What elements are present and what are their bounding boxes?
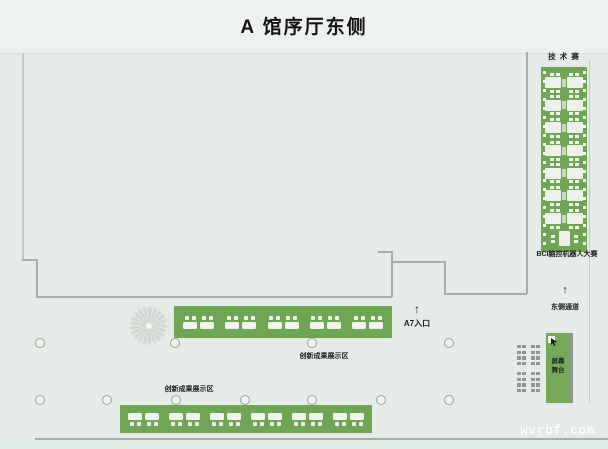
east-passage-arrow-icon: ↑: [556, 284, 574, 296]
wall-bottom: [35, 438, 608, 440]
upper-display-strip: [174, 306, 392, 338]
wall-top: [0, 53, 608, 54]
wall-alcove-right-v: [444, 261, 446, 295]
stage-cursor-icon: [548, 336, 558, 346]
tech-booth-unit: [546, 73, 582, 93]
pillar: [35, 395, 45, 405]
lower-display-label: 创新成果展示区: [153, 384, 225, 394]
display-table: [128, 413, 142, 426]
display-table: [227, 413, 241, 426]
display-table: [350, 413, 364, 426]
tech-booth-unit: [546, 141, 582, 161]
display-table: [210, 413, 224, 426]
table-pair: [352, 316, 383, 329]
pillar: [171, 395, 181, 405]
display-table: [333, 413, 347, 426]
pillar: [444, 338, 454, 348]
pillar: [102, 395, 112, 405]
display-table: [327, 316, 341, 329]
screen-stage: 屏幕 舞台: [546, 333, 573, 403]
wall-step-left-h: [22, 259, 37, 261]
pillar: [35, 338, 45, 348]
display-table: [242, 316, 256, 329]
tech-booth-unit: [546, 95, 582, 115]
pillar: [307, 338, 317, 348]
east-passage-label: 东侧通道: [544, 302, 586, 312]
pillar: [240, 395, 250, 405]
tech-booth-unit: [546, 163, 582, 183]
display-table: [292, 413, 306, 426]
wall-right-outer: [589, 60, 590, 402]
wall-notch-h: [378, 251, 392, 253]
tech-zone-booth-strip: [541, 67, 587, 252]
display-table: [369, 316, 383, 329]
floor-plan: A 馆序厅东侧 技 术 赛 BCI脑控机器人大赛 ↑ 东侧通道 ↑ A7入口 创…: [0, 0, 608, 449]
tech-booth-end-unit: [546, 231, 582, 246]
display-table: [352, 316, 366, 329]
wall-step-left-v: [36, 259, 38, 297]
display-table: [310, 316, 324, 329]
display-table: [169, 413, 183, 426]
audience-seats-lower: [517, 372, 540, 392]
plan-bottom-band: [0, 439, 608, 449]
tech-booth-unit: [546, 118, 582, 138]
table-pair: [268, 316, 299, 329]
bci-competition-label: BCI脑控机器人大赛: [524, 249, 608, 259]
display-table: [200, 316, 214, 329]
pillar: [170, 338, 180, 348]
stage-label: 屏幕 舞台: [546, 357, 570, 375]
display-table: [309, 413, 323, 426]
table-pair: [183, 316, 214, 329]
round-fan-feature: [129, 306, 168, 345]
tech-zone-label: 技 术 赛: [531, 51, 597, 62]
display-table: [268, 413, 282, 426]
display-table: [145, 413, 159, 426]
watermark: wvrbf.com: [520, 423, 608, 438]
pillar: [307, 395, 317, 405]
pillar: [444, 395, 454, 405]
tech-booth-unit: [546, 186, 582, 206]
wall-alcove-bottom: [444, 293, 527, 295]
table-pair: [251, 413, 282, 426]
display-table: [268, 316, 282, 329]
display-table: [285, 316, 299, 329]
wall-alcove-top: [391, 261, 445, 263]
display-table: [186, 413, 200, 426]
wall-left: [22, 53, 24, 259]
table-pair: [225, 316, 256, 329]
display-table: [251, 413, 265, 426]
tech-booth-unit: [546, 209, 582, 229]
table-pair: [210, 413, 241, 426]
page-title: A 馆序厅东侧: [0, 12, 608, 39]
lower-display-strip: [120, 405, 372, 433]
table-pair: [333, 413, 364, 426]
audience-seats-upper: [517, 345, 540, 365]
table-pair: [310, 316, 341, 329]
a7-entrance-label: A7入口: [399, 318, 435, 329]
display-table: [225, 316, 239, 329]
display-table: [183, 316, 197, 329]
pillar: [376, 395, 386, 405]
table-pair: [169, 413, 200, 426]
a7-entrance-arrow-icon: ↑: [408, 302, 426, 316]
table-pair: [128, 413, 159, 426]
table-pair: [292, 413, 323, 426]
upper-display-label: 创新成果展示区: [288, 351, 360, 361]
wall-main-h: [36, 296, 392, 298]
wall-notch-v: [391, 251, 393, 297]
